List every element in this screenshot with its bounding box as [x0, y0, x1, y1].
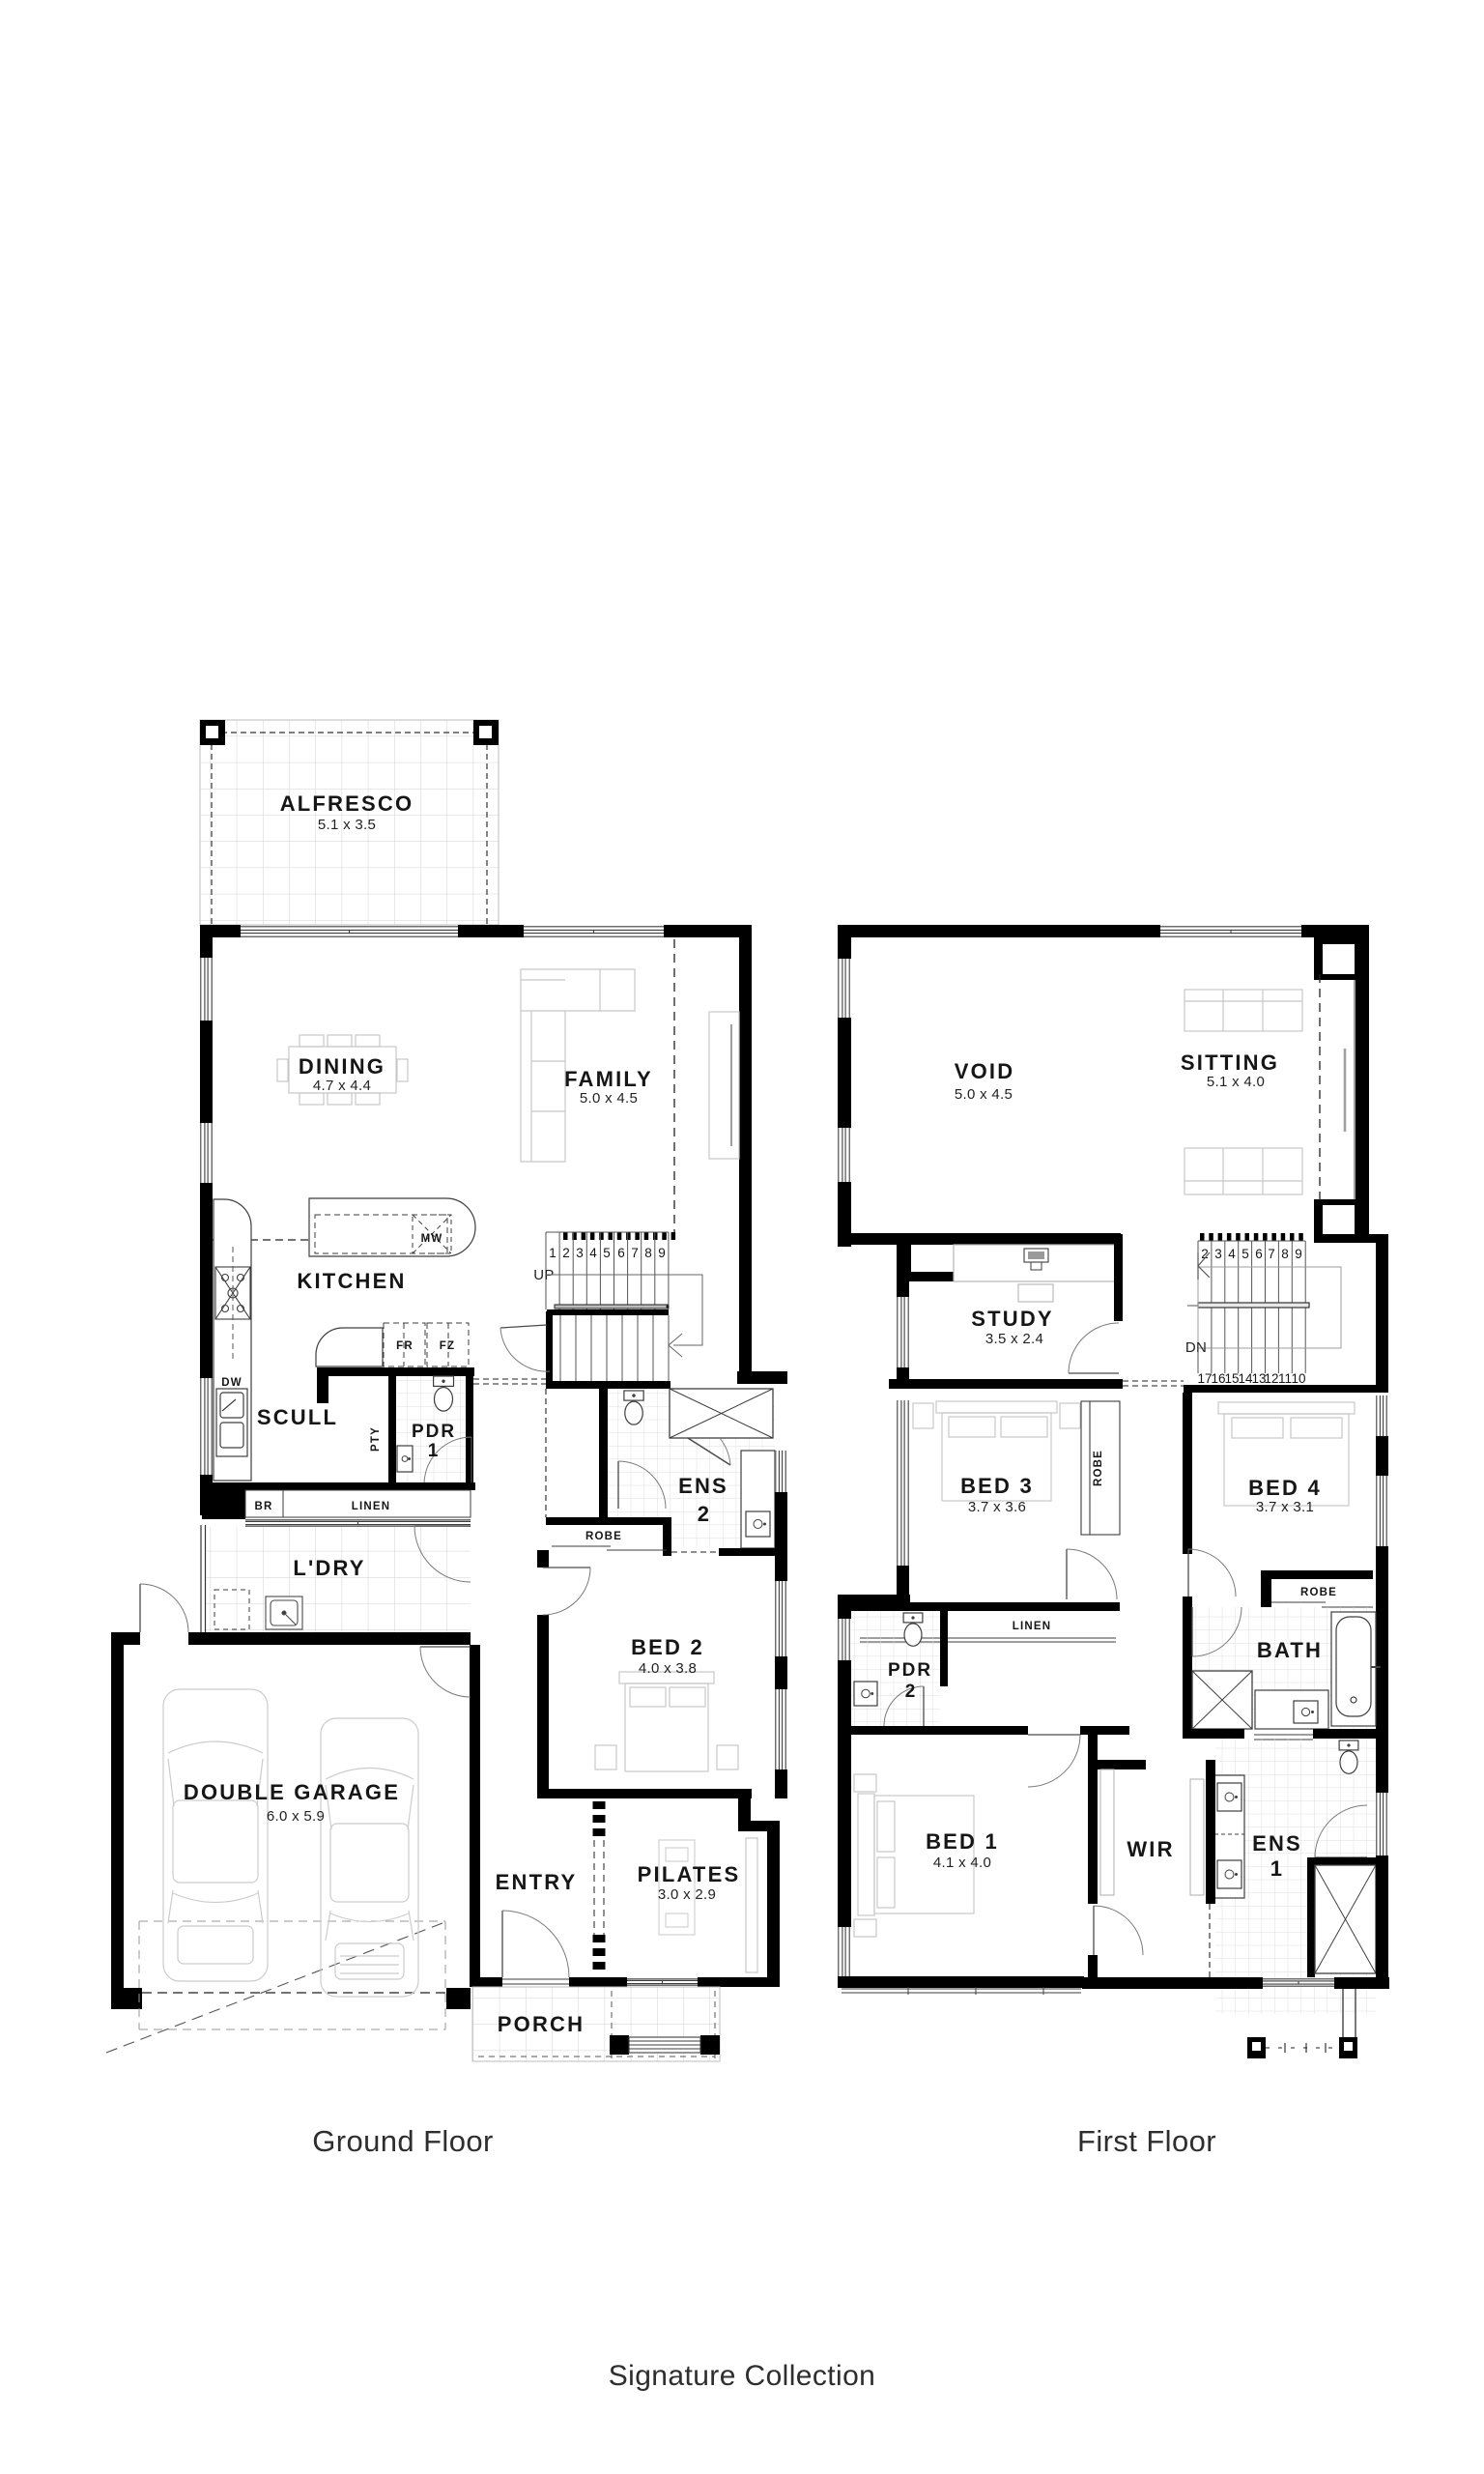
svg-text:Ground Floor: Ground Floor [312, 2124, 493, 2158]
svg-text:17: 17 [1197, 1371, 1212, 1386]
svg-text:KITCHEN: KITCHEN [297, 1269, 406, 1293]
svg-text:PDR: PDR [888, 1660, 932, 1681]
svg-text:3.5 x 2.4: 3.5 x 2.4 [985, 1331, 1043, 1347]
svg-text:3.7 x 3.6: 3.7 x 3.6 [968, 1499, 1026, 1515]
svg-text:DOUBLE GARAGE: DOUBLE GARAGE [184, 1780, 400, 1804]
svg-text:STUDY: STUDY [971, 1307, 1054, 1331]
svg-text:4.0 x 3.8: 4.0 x 3.8 [639, 1660, 697, 1677]
svg-text:BED 2: BED 2 [631, 1635, 704, 1659]
svg-text:3.7 x 3.1: 3.7 x 3.1 [1256, 1499, 1314, 1515]
svg-text:8: 8 [644, 1246, 652, 1260]
svg-text:4: 4 [589, 1246, 597, 1260]
svg-text:4: 4 [1228, 1247, 1236, 1261]
svg-text:SCULL: SCULL [257, 1405, 338, 1429]
svg-text:3: 3 [1214, 1247, 1222, 1261]
svg-text:1: 1 [428, 1441, 441, 1461]
svg-text:DINING: DINING [299, 1054, 385, 1079]
svg-text:3.0 x 2.9: 3.0 x 2.9 [658, 1886, 716, 1903]
svg-text:ROBE: ROBE [1300, 1587, 1337, 1598]
svg-text:3: 3 [576, 1246, 584, 1260]
svg-text:ROBE: ROBE [585, 1531, 622, 1542]
svg-text:5.1 x 3.5: 5.1 x 3.5 [318, 817, 376, 833]
svg-text:2: 2 [905, 1682, 918, 1702]
svg-text:PILATES: PILATES [638, 1862, 741, 1886]
svg-text:ENS: ENS [1252, 1831, 1302, 1855]
svg-text:8: 8 [1281, 1247, 1289, 1261]
svg-text:PTY: PTY [370, 1426, 382, 1452]
svg-text:BED 3: BED 3 [960, 1474, 1034, 1498]
svg-text:First Floor: First Floor [1077, 2124, 1216, 2158]
svg-text:ENS: ENS [678, 1474, 728, 1498]
svg-text:5.0 x 4.5: 5.0 x 4.5 [580, 1090, 638, 1107]
svg-text:ENTRY: ENTRY [496, 1870, 578, 1894]
svg-text:1: 1 [549, 1246, 556, 1260]
svg-text:VOID: VOID [955, 1059, 1015, 1083]
svg-text:SITTING: SITTING [1181, 1050, 1279, 1075]
svg-text:L'DRY: L'DRY [293, 1556, 365, 1580]
svg-text:MW: MW [421, 1233, 443, 1245]
svg-text:9: 9 [1295, 1247, 1302, 1261]
svg-text:6.0 x 5.9: 6.0 x 5.9 [267, 1808, 325, 1825]
svg-text:5: 5 [603, 1246, 611, 1260]
svg-text:FR: FR [396, 1340, 414, 1352]
svg-text:5.1 x 4.0: 5.1 x 4.0 [1207, 1074, 1265, 1090]
svg-text:5.0 x 4.5: 5.0 x 4.5 [955, 1086, 1013, 1103]
svg-text:6: 6 [1255, 1247, 1263, 1261]
svg-text:ROBE: ROBE [1093, 1450, 1104, 1486]
svg-text:ALFRESCO: ALFRESCO [280, 791, 414, 816]
svg-text:LINEN: LINEN [352, 1501, 391, 1512]
svg-text:2: 2 [562, 1246, 570, 1260]
svg-text:BR: BR [254, 1501, 272, 1512]
svg-text:4.7 x 4.4: 4.7 x 4.4 [313, 1078, 371, 1094]
svg-text:4.1 x 4.0: 4.1 x 4.0 [933, 1855, 991, 1871]
svg-text:6: 6 [617, 1246, 625, 1260]
svg-text:7: 7 [1268, 1247, 1275, 1261]
svg-text:PDR: PDR [412, 1422, 456, 1442]
svg-text:LINEN: LINEN [1013, 1621, 1052, 1632]
svg-text:FAMILY: FAMILY [564, 1067, 653, 1091]
svg-text:15: 15 [1224, 1371, 1239, 1386]
svg-text:1: 1 [1270, 1856, 1284, 1881]
svg-text:WIR: WIR [1127, 1837, 1174, 1861]
svg-text:12: 12 [1264, 1371, 1278, 1386]
svg-text:11: 11 [1278, 1371, 1292, 1386]
svg-text:FZ: FZ [440, 1340, 455, 1352]
svg-text:PORCH: PORCH [498, 2012, 585, 2036]
svg-text:DW: DW [221, 1377, 243, 1389]
svg-text:5: 5 [1241, 1247, 1249, 1261]
svg-text:7: 7 [631, 1246, 639, 1260]
svg-text:BATH: BATH [1257, 1638, 1323, 1662]
svg-text:2: 2 [698, 1502, 711, 1526]
svg-text:16: 16 [1211, 1371, 1225, 1386]
svg-text:BED 4: BED 4 [1248, 1476, 1322, 1500]
svg-text:10: 10 [1291, 1371, 1305, 1386]
svg-text:9: 9 [658, 1246, 666, 1260]
svg-text:BED 1: BED 1 [926, 1829, 999, 1854]
svg-text:Signature Collection: Signature Collection [609, 2360, 876, 2392]
svg-text:DN: DN [1185, 1339, 1207, 1356]
